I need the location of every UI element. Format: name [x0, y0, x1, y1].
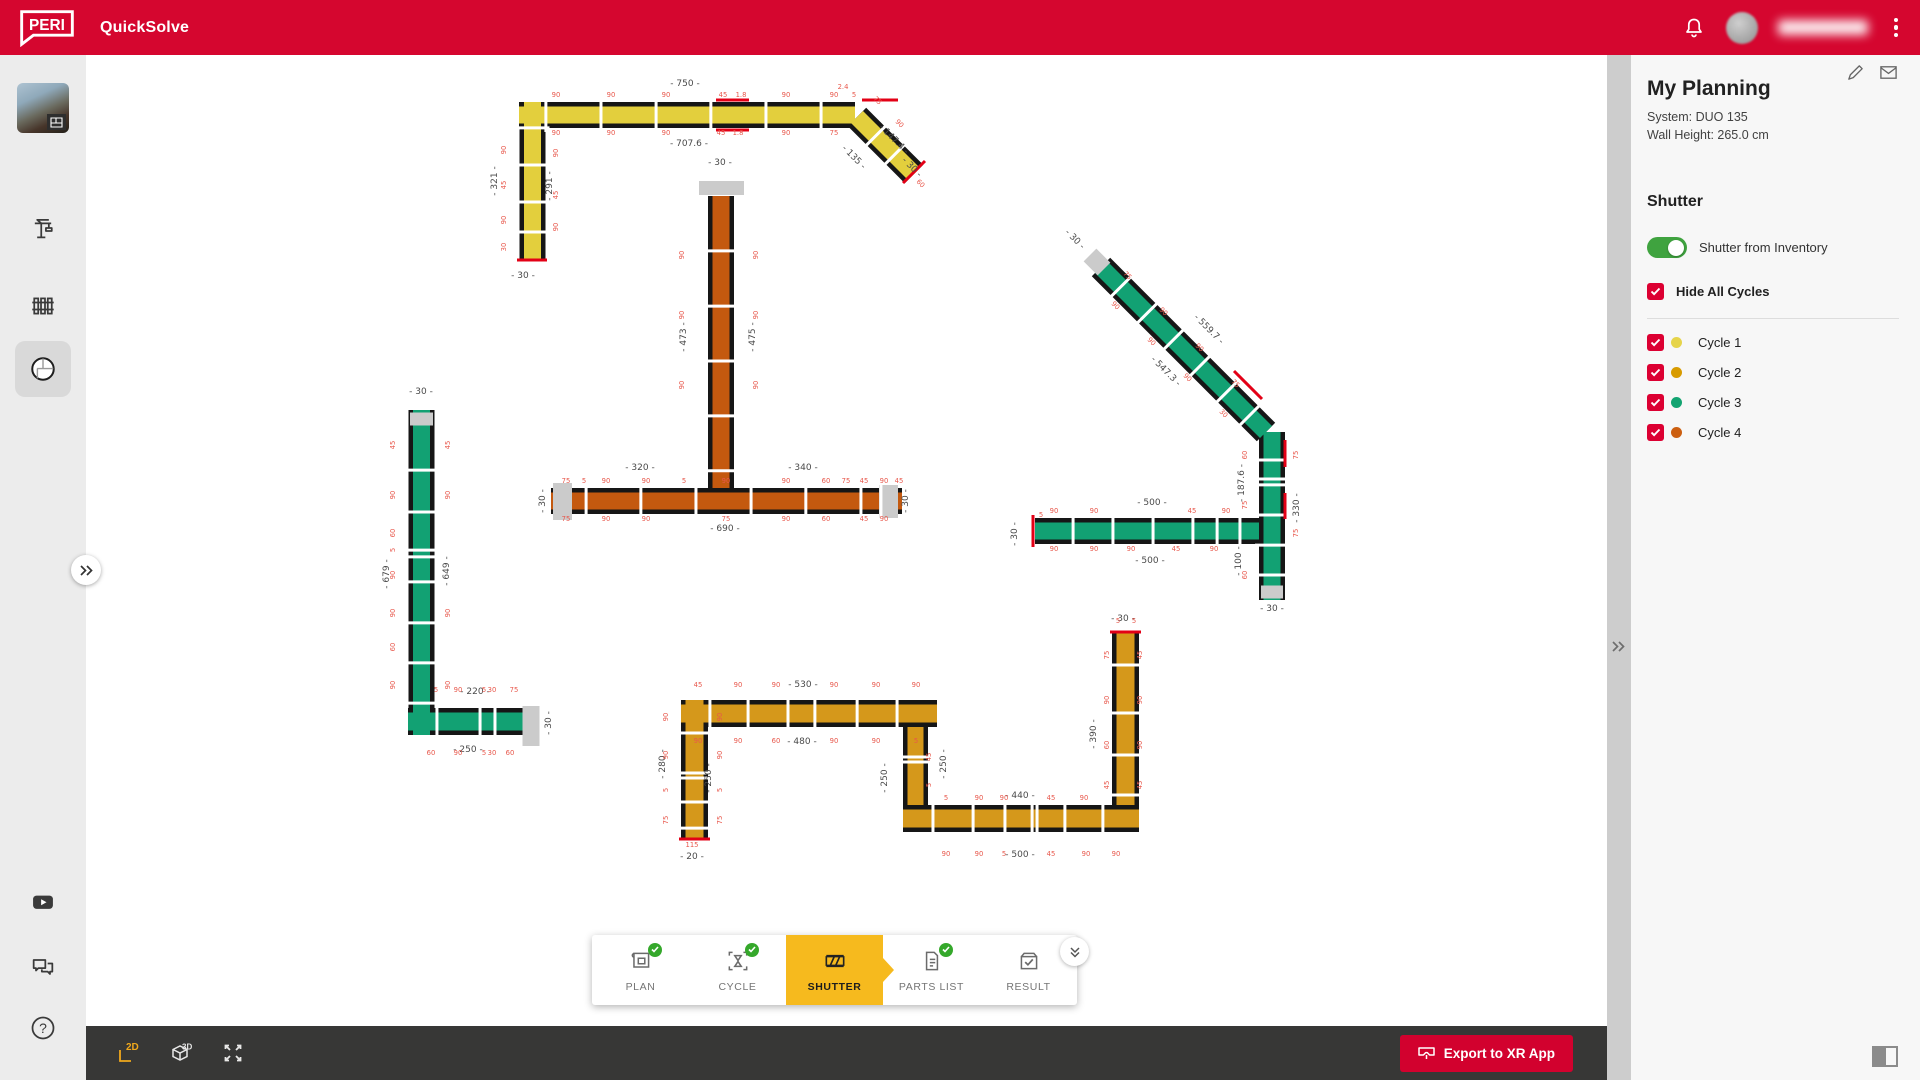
system-info: System: DUO 135 [1647, 110, 1748, 124]
panel-width-label: 90 [454, 686, 463, 694]
panel-width-label: 45 [1188, 507, 1197, 515]
cycle-row-4: Cycle 4 [1647, 421, 1741, 443]
panel-width-label: 75 [722, 515, 731, 523]
tab-shutter-label: SHUTTER [808, 981, 862, 993]
toggle-label[interactable]: Shutter from Inventory [1699, 240, 1828, 255]
panel-width-label: 90 [389, 609, 397, 618]
complete-badge [648, 943, 662, 957]
help-icon[interactable]: ? [29, 1014, 57, 1042]
svg-text:?: ? [39, 1020, 47, 1036]
panel-width-label: 2.4 [838, 83, 849, 91]
panel-width-label: 45 [1047, 850, 1056, 858]
panel-width-label: 90 [500, 216, 508, 225]
panel-width-label: 90 [444, 681, 452, 690]
panel-width-label: 90 [552, 129, 561, 137]
overflow-menu-icon[interactable] [1888, 14, 1905, 42]
cycle-2-color-dot [1671, 367, 1682, 378]
panel-width-label: 60 [772, 737, 781, 745]
chevron-right-icon [1611, 640, 1626, 658]
dimension-label: - 690 - [710, 524, 739, 534]
panel-width-label: 45 [1172, 545, 1181, 553]
view-2d-icon[interactable]: 2D [116, 1040, 142, 1066]
dimension-label: - 559.7 - [1191, 313, 1225, 347]
panel-width-label: 45 [895, 477, 904, 485]
panel-width-label: 90 [830, 91, 839, 99]
app-root: PERI QuickSolve [0, 0, 1920, 1080]
view-3d-icon[interactable]: 3D [168, 1040, 194, 1066]
panel-width-label: 90 [782, 129, 791, 137]
panel-width-label: 5 [434, 686, 438, 694]
tab-result-label: RESULT [1006, 981, 1050, 993]
panel-width-label: 90 [872, 737, 881, 745]
panel-width-label: 90 [500, 146, 508, 155]
panel-width-label: 90 [607, 129, 616, 137]
dimension-label: - 440 - [1005, 791, 1034, 801]
header: PERI QuickSolve [0, 0, 1920, 55]
panel-width-label: 90 [1050, 545, 1059, 553]
panel-width-label: 60 [822, 477, 831, 485]
dimension-label: - 649 - [442, 556, 452, 585]
panel-width-label: 60 [1241, 571, 1249, 580]
shutter-from-inventory-toggle[interactable] [1647, 237, 1687, 258]
svg-text:3D: 3D [182, 1043, 192, 1052]
dimension-label: - 250 - [939, 749, 949, 778]
floor-plan-svg[interactable]: - 750 -- 707.6 -- 321 -- 291 -- 30 -- 14… [86, 55, 1607, 1026]
panel-width-label: 90 [389, 571, 397, 580]
panel-width-label: 115 [686, 841, 699, 849]
result-icon [1016, 948, 1042, 974]
wall-run-fill[interactable] [1101, 267, 1266, 432]
panel-width-label: 90 [734, 681, 743, 689]
cycle-4-label: Cycle 4 [1698, 425, 1741, 440]
panel-width-label: 45 [1136, 781, 1144, 790]
panel-width-label: 90 [772, 681, 781, 689]
panel-width-label: 90 [662, 751, 670, 760]
panel-width-label: 90 [782, 515, 791, 523]
panel-width-label: 90 [722, 477, 731, 485]
shutter-section-heading: Shutter [1647, 193, 1703, 211]
hide-all-cycles-label[interactable]: Hide All Cycles [1676, 284, 1769, 299]
crane-icon[interactable] [29, 214, 57, 242]
export-label: Export to XR App [1444, 1046, 1555, 1061]
wall-end-cap [1090, 255, 1104, 269]
tab-shutter[interactable]: SHUTTER [786, 935, 883, 1005]
complete-badge [939, 943, 953, 957]
panel-width-label: 60 [389, 643, 397, 652]
tab-parts-list[interactable]: PARTS LIST [883, 935, 980, 1005]
panel-width-label: 90 [752, 381, 760, 390]
cycle-2-label: Cycle 2 [1698, 365, 1741, 380]
panel-width-label: 90 [872, 681, 881, 689]
panel-width-label: 1.8 [733, 129, 744, 137]
xr-headset-icon [1418, 1047, 1435, 1060]
tab-cycle-label: CYCLE [718, 981, 756, 993]
panel-width-label: 75 [510, 686, 519, 694]
panel-width-label: 5 [582, 477, 586, 485]
panel-width-label: 75 [716, 816, 724, 825]
plan-overlay-icon [47, 114, 66, 130]
panel-width-label: 90 [678, 311, 686, 320]
panel-width-label: 90 [716, 713, 724, 722]
sidebar-item-floorplan[interactable] [15, 341, 71, 397]
parts-list-icon [919, 948, 945, 974]
cycle-4-checkbox[interactable] [1647, 424, 1664, 441]
panel-width-label: 90 [678, 251, 686, 260]
panel-width-label: 45 [552, 191, 560, 200]
panel-width-label: 90 [830, 737, 839, 745]
panel-width-label: 45 [719, 91, 728, 99]
panel-width-label: 90 [662, 713, 670, 722]
fullscreen-icon[interactable] [220, 1040, 246, 1066]
panel-width-label: 90 [678, 381, 686, 390]
dimension-label: - 30 - [538, 489, 548, 513]
panel-width-label: 30 [488, 749, 497, 757]
panel-width-label: 90 [716, 751, 724, 760]
dimension-label: - 500 - [1137, 498, 1166, 508]
dimension-label: - 500 - [1135, 556, 1164, 566]
panel-width-label: 90 [389, 491, 397, 500]
panel-width-label: 90 [752, 251, 760, 260]
panel-width-label: 5 [914, 737, 918, 745]
panel-width-label: 90 [912, 681, 921, 689]
panel-width-label: 90 [552, 223, 560, 232]
tab-cycle[interactable]: CYCLE [689, 935, 786, 1005]
mail-icon[interactable] [1879, 63, 1898, 82]
cycle-icon [725, 948, 751, 974]
panel-width-label: 90 [975, 794, 984, 802]
cycle-row-1: Cycle 1 [1647, 331, 1741, 353]
dimension-label: - 480 - [787, 737, 816, 747]
svg-text:PERI: PERI [29, 16, 65, 33]
panel-width-label: 30 [500, 243, 508, 252]
dimension-label: - 390 - [1089, 719, 1099, 748]
expand-sidebar-button[interactable] [71, 555, 101, 585]
cycle-2-checkbox[interactable] [1647, 364, 1664, 381]
dimension-label: - 30 - [544, 711, 554, 735]
panel-width-label: 90 [782, 91, 791, 99]
dimension-label: - 750 - [670, 79, 699, 89]
dimension-label: - 250 - [704, 763, 714, 792]
panel-width-label: 60 [427, 749, 436, 757]
panel-width-label: 5 [482, 686, 486, 694]
panel-width-label: 90 [552, 149, 560, 158]
panel-width-label: 90 [752, 311, 760, 320]
chat-icon[interactable] [29, 953, 57, 981]
plan-icon [628, 948, 654, 974]
panel-width-label: 60 [915, 178, 927, 190]
dimension-label: - 500 - [1005, 850, 1034, 860]
panel-width-label: 75 [1292, 451, 1300, 460]
planning-panel: My Planning System: DUO 135 Wall Height:… [1631, 55, 1920, 1080]
panel-width-label: 90 [880, 515, 889, 523]
panel-width-label: 5 [389, 548, 397, 552]
panel-width-label: 90 [444, 491, 452, 500]
panel-width-label: 5 [662, 788, 670, 792]
panel-width-label: 45 [444, 441, 452, 450]
panel-width-label: 5 [944, 794, 948, 802]
panel-width-label: 5 [482, 749, 486, 757]
panel-width-label: 90 [642, 477, 651, 485]
panel-width-label: 75 [662, 816, 670, 825]
youtube-icon[interactable] [29, 888, 57, 916]
dimension-label: - 321 - [490, 166, 500, 195]
collapse-panel-strip[interactable] [1607, 55, 1631, 1080]
panel-width-label: 45 [389, 441, 397, 450]
export-to-xr-button[interactable]: Export to XR App [1400, 1035, 1573, 1072]
floorplan-icon [29, 355, 57, 383]
panel-width-label: 45 [860, 477, 869, 485]
viewer-toolbar: 2D 3D Export to XR App [86, 1026, 1607, 1080]
panel-width-label: 90 [1080, 794, 1089, 802]
panel-width-label: 5 [682, 477, 686, 485]
project-thumbnail[interactable] [17, 83, 69, 133]
panel-width-label: 90 [975, 850, 984, 858]
dimension-label: - 530 - [788, 680, 817, 690]
panel-width-label: 90 [782, 477, 791, 485]
cycle-1-checkbox[interactable] [1647, 334, 1664, 351]
hide-all-cycles-checkbox[interactable] [1647, 283, 1664, 300]
tab-plan[interactable]: PLAN [592, 935, 689, 1005]
dimension-label: - 20 - [680, 852, 704, 862]
cycle-row-2: Cycle 2 [1647, 361, 1741, 383]
panel-width-label: 75 [872, 95, 884, 107]
panel-width-label: 5 [716, 788, 724, 792]
dimension-label: - 475 - [748, 322, 758, 351]
shutter-icon [822, 948, 848, 974]
panel-width-label: 75 [562, 477, 571, 485]
peri-logo: PERI [18, 9, 76, 47]
layout-panel-toggle-icon[interactable] [1872, 1046, 1898, 1067]
panel-width-label: 75 [842, 477, 851, 485]
panel-width-label: 60 [506, 749, 515, 757]
panel-width-label: 45 [925, 753, 933, 762]
panel-width-label: 90 [444, 609, 452, 618]
panel-width-label: 1.8 [736, 91, 747, 99]
panel-width-label: 90 [942, 850, 951, 858]
panel-width-label: 90 [1222, 507, 1231, 515]
dimension-label: - 320 - [625, 463, 654, 473]
panel-width-label: 5 [1039, 511, 1043, 519]
panel-width-label: 75 [1241, 501, 1249, 510]
edit-pencil-icon[interactable] [1846, 63, 1865, 82]
panel-width-label: 90 [642, 515, 651, 523]
panel-width-label: 90 [1050, 507, 1059, 515]
dimension-label: - 30 - [511, 271, 535, 281]
panel-width-label: 90 [662, 129, 671, 137]
cycle-4-color-dot [1671, 427, 1682, 438]
dimension-label: - 707.6 - [670, 139, 708, 149]
cycle-3-label: Cycle 3 [1698, 395, 1741, 410]
panel-width-label: 90 [1090, 507, 1099, 515]
dimension-label: - 30 - [1010, 522, 1020, 546]
panel-width-label: 45 [1103, 781, 1111, 790]
panel-width-label: 60 [389, 529, 397, 538]
app-title: QuickSolve [100, 19, 189, 37]
panel-width-label: 90 [894, 118, 906, 130]
panel-width-label: 5 [925, 783, 933, 787]
cycle-1-label: Cycle 1 [1698, 335, 1741, 350]
panel-width-label: 90 [1136, 696, 1144, 705]
dimension-label: - 135 - [839, 144, 867, 172]
panel-width-label: 5 [852, 91, 856, 99]
panel-width-label: 75 [1103, 651, 1111, 660]
panel-width-label: 90 [1103, 696, 1111, 705]
panel-width-label: 90 [389, 681, 397, 690]
panel-width-label: 60 [822, 515, 831, 523]
dimension-label: - 340 - [788, 463, 817, 473]
panel-width-label: 90 [1090, 545, 1099, 553]
panel-width-label: 90 [1000, 794, 1009, 802]
formwork-panels-icon[interactable] [29, 292, 57, 320]
panel-width-label: 90 [607, 91, 616, 99]
panel-width-label: 90 [694, 737, 703, 745]
dimension-label: - 30 - [901, 489, 911, 513]
cycle-3-checkbox[interactable] [1647, 394, 1664, 411]
user-avatar[interactable] [1726, 12, 1758, 44]
panel-width-label: 90 [552, 91, 561, 99]
panel-width-label: 90 [454, 749, 463, 757]
panel-width-label: 90 [1210, 545, 1219, 553]
panel-width-label: 5 [1132, 617, 1136, 625]
tab-plan-label: PLAN [626, 981, 656, 993]
panel-width-label: 45 [717, 129, 726, 137]
panel-width-label: 45 [1136, 651, 1144, 660]
dimension-label: - 187.6 - [1237, 464, 1247, 502]
panel-width-label: 45 [1047, 794, 1056, 802]
panel-width-label: 90 [1112, 850, 1121, 858]
panel-width-label: 60 [1241, 451, 1249, 460]
dimension-label: - 330 - [1292, 493, 1302, 522]
workflow-tab-bar: PLAN CYCLE SHUTTER PARTS LIST [592, 935, 1077, 1005]
dimension-label: - 30 - [708, 158, 732, 168]
svg-text:2D: 2D [126, 1042, 139, 1053]
dimension-label: - 30 - [409, 387, 433, 397]
divider [1647, 318, 1899, 319]
panel-width-label: 5 [1116, 617, 1120, 625]
panel-title: My Planning [1647, 77, 1771, 101]
panel-width-label: 90 [662, 91, 671, 99]
panel-width-label: 90 [1127, 545, 1136, 553]
tab-parts-list-label: PARTS LIST [899, 981, 964, 993]
panel-width-label: 90 [880, 477, 889, 485]
panel-width-label: 75 [562, 515, 571, 523]
cycle-3-color-dot [1671, 397, 1682, 408]
cycle-1-color-dot [1671, 337, 1682, 348]
panel-width-label: 90 [734, 737, 743, 745]
panel-width-label: 45 [694, 681, 703, 689]
dimension-label: - 30 - [1260, 604, 1284, 614]
panel-width-label: 60 [1103, 741, 1111, 750]
wall-height-info: Wall Height: 265.0 cm [1647, 128, 1769, 142]
collapse-tabbar-button[interactable] [1060, 937, 1089, 966]
panel-width-label: 5 [1002, 850, 1006, 858]
user-name-blurred [1778, 20, 1868, 35]
panel-width-label: 75 [830, 129, 839, 137]
panel-width-label: 90 [602, 515, 611, 523]
panel-width-label: 30 [488, 686, 497, 694]
panel-width-label: 90 [602, 477, 611, 485]
panel-width-label: 45 [860, 515, 869, 523]
panel-width-label: 45 [500, 181, 508, 190]
dimension-label: - 473 - [679, 322, 689, 351]
dimension-label: - 30 - [1063, 228, 1087, 252]
complete-badge [745, 943, 759, 957]
notifications-bell-icon[interactable] [1682, 16, 1706, 40]
panel-width-label: 90 [1136, 741, 1144, 750]
plan-canvas[interactable]: - 750 -- 707.6 -- 321 -- 291 -- 30 -- 14… [86, 55, 1607, 1026]
panel-width-label: 90 [1082, 850, 1091, 858]
cycle-row-3: Cycle 3 [1647, 391, 1741, 413]
panel-width-label: 90 [830, 681, 839, 689]
panel-width-label: 75 [1292, 529, 1300, 538]
dimension-label: - 250 - [880, 763, 890, 792]
